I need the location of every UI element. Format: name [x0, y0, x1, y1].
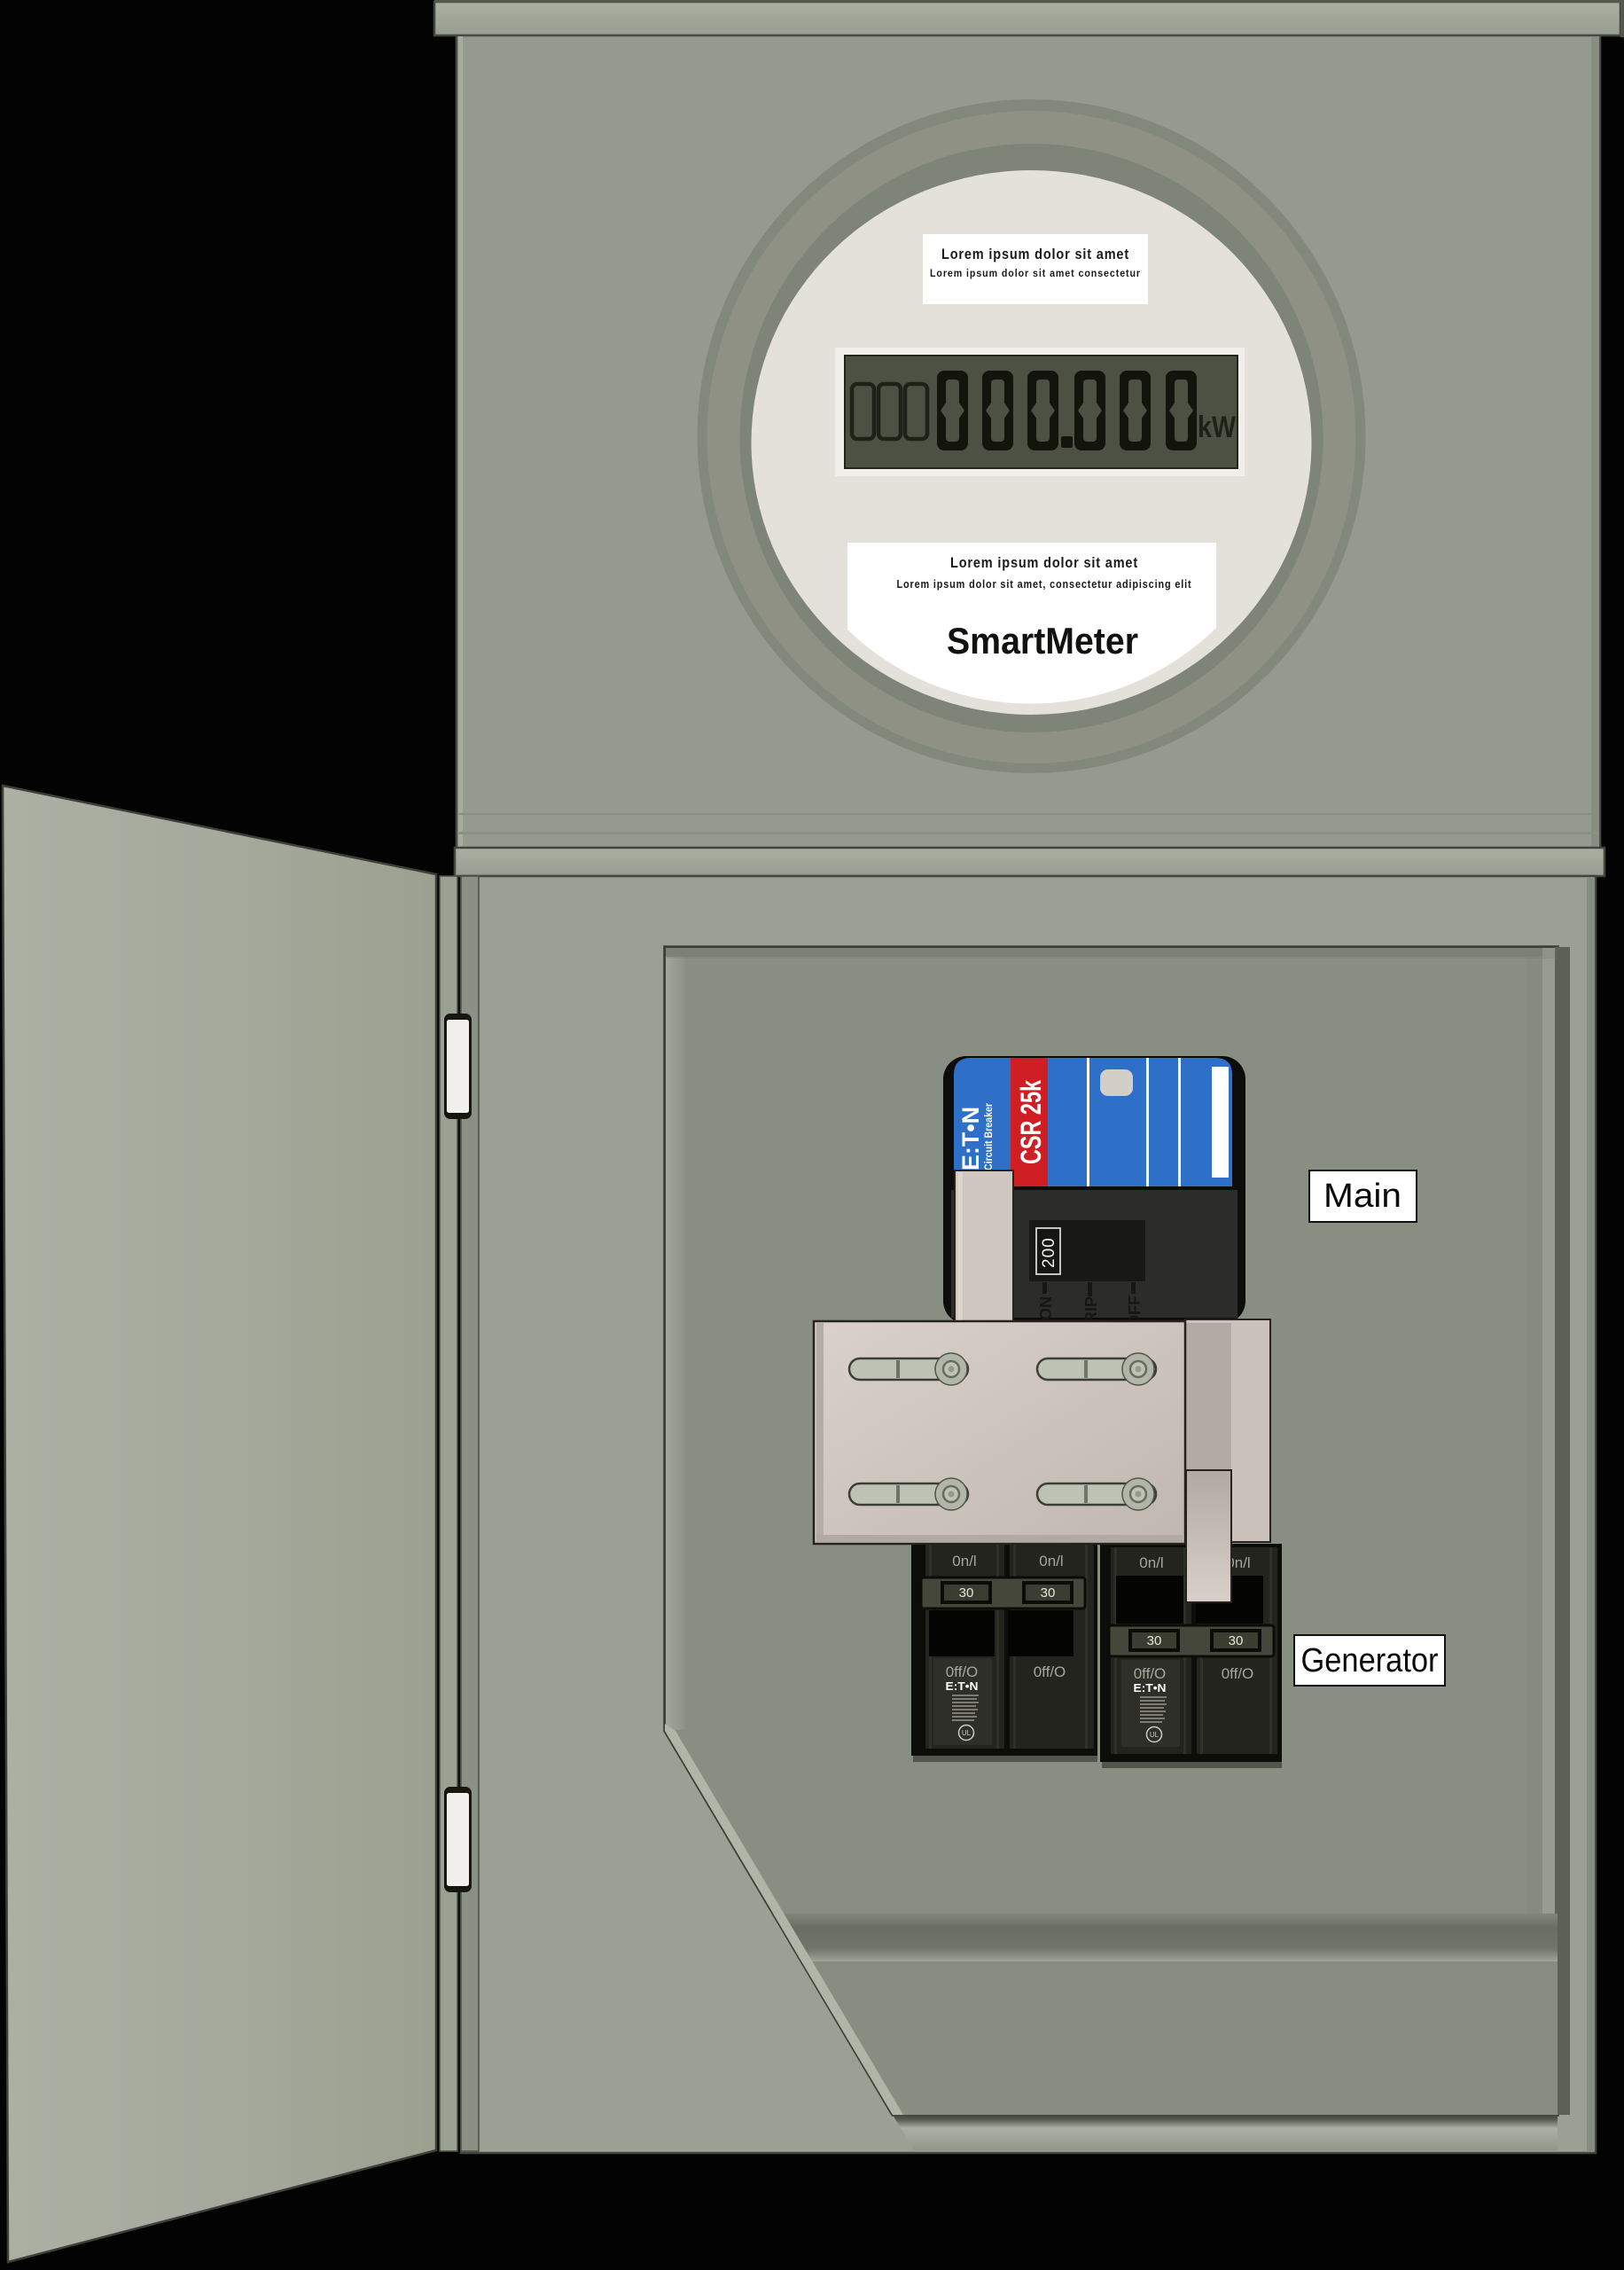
svg-text:0ff/O: 0ff/O [946, 1663, 979, 1680]
svg-text:0n/l: 0n/l [1039, 1553, 1063, 1569]
svg-text:Main: Main [1323, 1178, 1401, 1215]
svg-text:30: 30 [1041, 1585, 1056, 1601]
svg-text:0n/l: 0n/l [952, 1553, 976, 1569]
svg-text:0ff/O: 0ff/O [1222, 1665, 1254, 1682]
svg-text:200: 200 [1040, 1237, 1058, 1268]
svg-text:Lorem ipsum dolor sit amet: Lorem ipsum dolor sit amet [950, 554, 1138, 571]
svg-text:E:T•N: E:T•N [1134, 1681, 1167, 1695]
svg-text:30: 30 [1147, 1633, 1162, 1648]
svg-text:E:T•N: E:T•N [946, 1679, 979, 1693]
svg-text:CSR 25k: CSR 25k [1015, 1080, 1047, 1164]
svg-text:Generator: Generator [1301, 1642, 1439, 1679]
svg-text:UL: UL [962, 1729, 972, 1737]
svg-text:0ff/O: 0ff/O [1134, 1665, 1167, 1682]
svg-text:SmartMeter: SmartMeter [947, 620, 1138, 661]
svg-text:Lorem ipsum dolor sit amet, co: Lorem ipsum dolor sit amet, consectetur … [897, 578, 1192, 591]
svg-text:Lorem ipsum dolor sit amet: Lorem ipsum dolor sit amet [941, 246, 1129, 262]
svg-text:0n/l: 0n/l [1139, 1554, 1163, 1571]
svg-text:Circuit Breaker: Circuit Breaker [982, 1103, 995, 1170]
svg-text:Lorem ipsum dolor sit amet con: Lorem ipsum dolor sit amet consectetur [930, 269, 1141, 279]
svg-text:30: 30 [1229, 1633, 1244, 1648]
svg-text:ON: ON [1037, 1296, 1055, 1320]
svg-text:0ff/O: 0ff/O [1034, 1663, 1066, 1680]
svg-text:30: 30 [959, 1585, 974, 1601]
svg-text:E:T•N: E:T•N [957, 1107, 984, 1170]
svg-text:UL: UL [1150, 1731, 1159, 1739]
svg-text:kW: kW [1198, 411, 1237, 444]
